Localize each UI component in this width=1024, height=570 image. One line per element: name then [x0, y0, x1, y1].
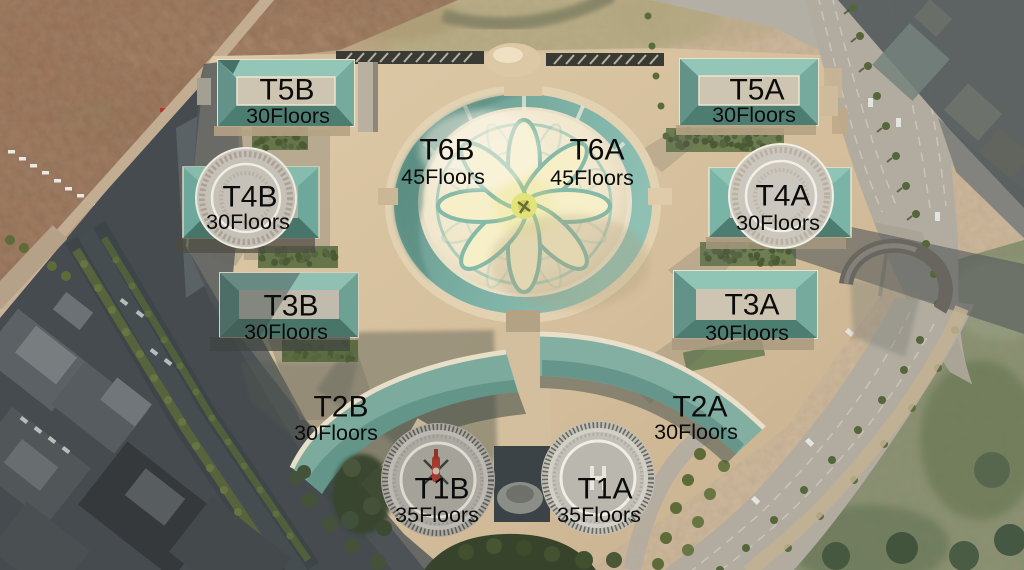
svg-text:30Floors: 30Floors: [206, 210, 290, 234]
svg-text:35Floors: 35Floors: [395, 503, 479, 527]
svg-text:30Floors: 30Floors: [246, 104, 330, 128]
svg-text:T4B: T4B: [222, 181, 277, 214]
svg-text:T6A: T6A: [569, 134, 624, 167]
svg-text:T3B: T3B: [263, 290, 318, 323]
svg-text:30Floors: 30Floors: [736, 211, 820, 235]
svg-text:T1B: T1B: [414, 473, 469, 506]
svg-text:35Floors: 35Floors: [557, 503, 641, 527]
svg-text:45Floors: 45Floors: [401, 165, 485, 189]
svg-text:T4A: T4A: [755, 180, 810, 213]
svg-text:T3A: T3A: [724, 289, 779, 322]
svg-text:T6B: T6B: [419, 134, 474, 167]
svg-text:30Floors: 30Floors: [244, 320, 328, 344]
svg-text:T2A: T2A: [672, 391, 727, 424]
svg-text:30Floors: 30Floors: [705, 321, 789, 345]
svg-text:30Floors: 30Floors: [294, 421, 378, 445]
svg-text:T1A: T1A: [577, 473, 632, 506]
svg-text:T5B: T5B: [259, 74, 314, 107]
svg-text:T2B: T2B: [313, 391, 368, 424]
svg-text:45Floors: 45Floors: [550, 166, 634, 190]
svg-text:30Floors: 30Floors: [712, 103, 796, 127]
svg-text:T5A: T5A: [729, 74, 784, 107]
svg-text:30Floors: 30Floors: [654, 420, 738, 444]
